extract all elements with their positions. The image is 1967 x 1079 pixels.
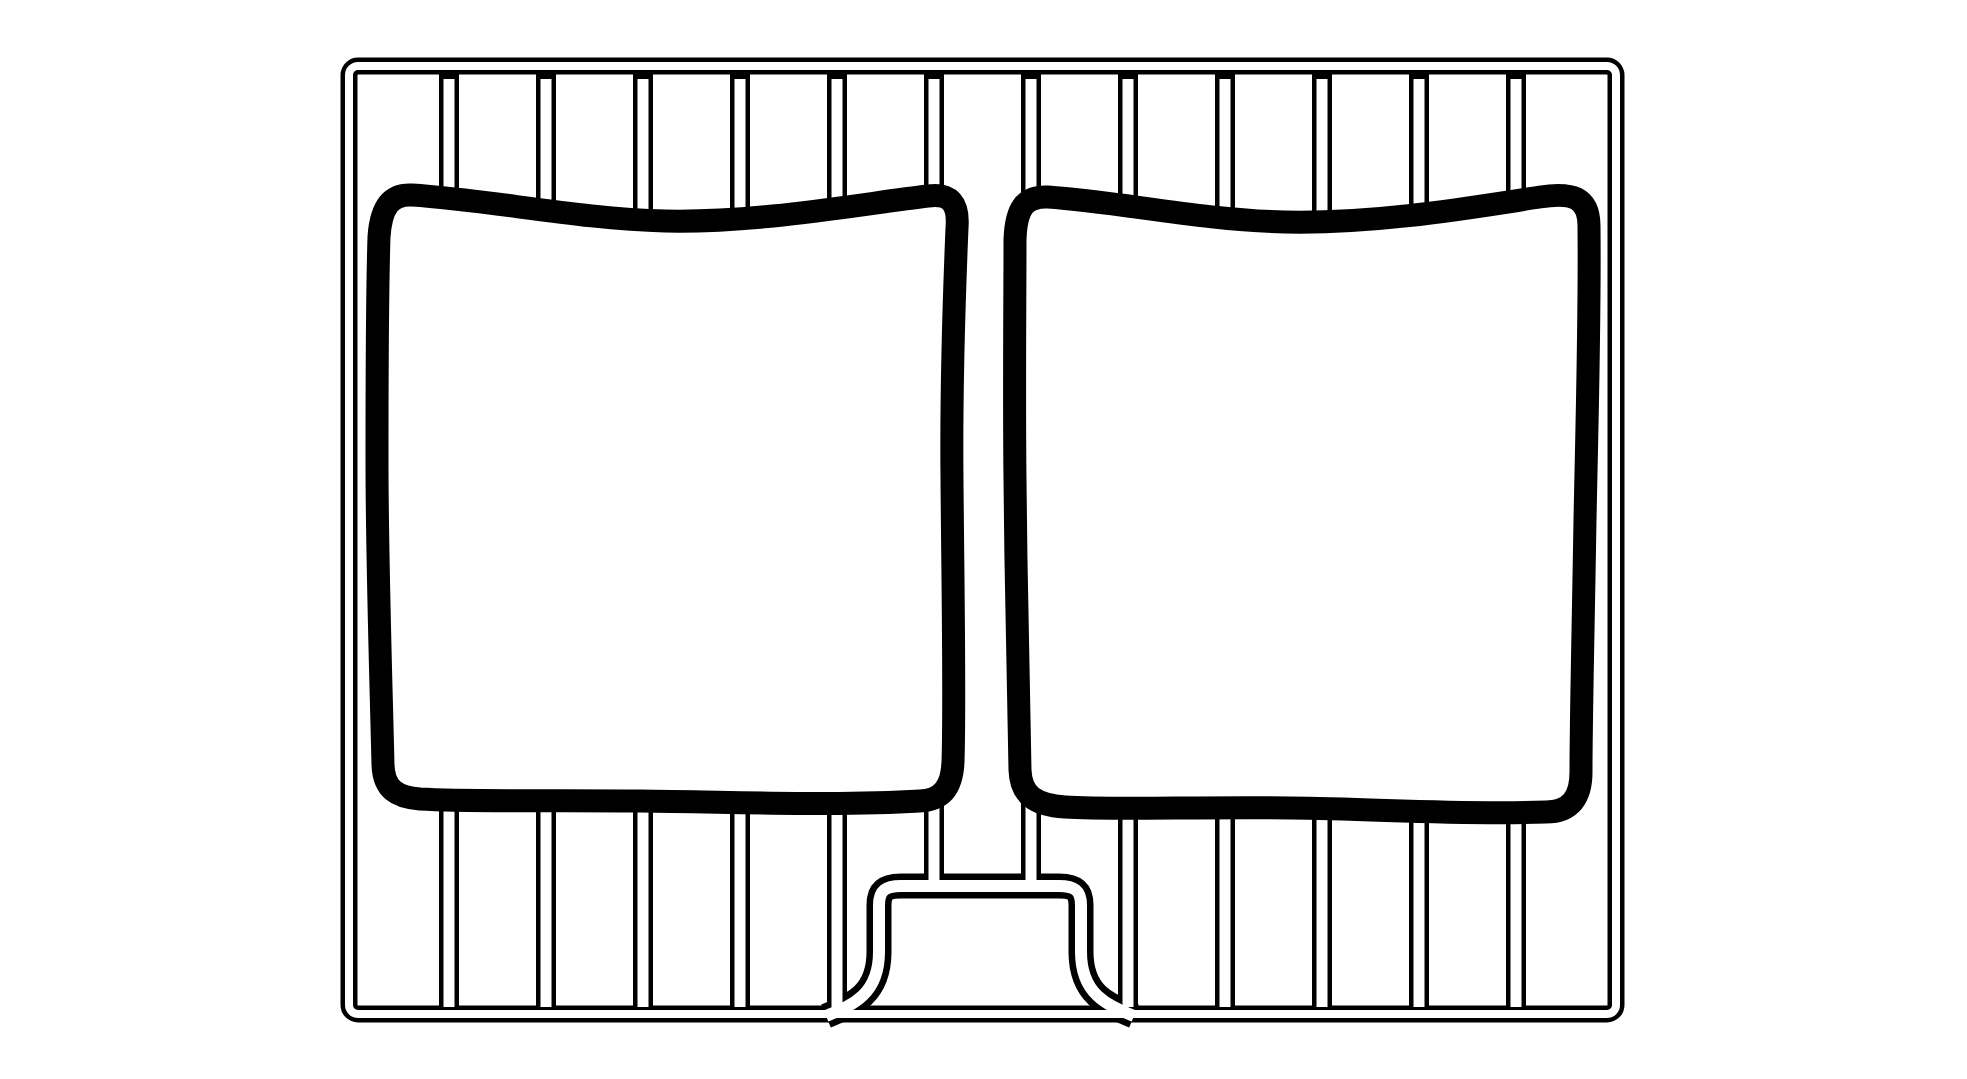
bread-slices xyxy=(377,195,1589,813)
canvas xyxy=(0,0,1967,1079)
rack-handle-outline xyxy=(826,886,1134,1016)
grill-rack-illustration xyxy=(0,0,1967,1079)
rack-handle-tube xyxy=(826,886,1134,1016)
bread-slice-left xyxy=(377,195,957,804)
grill-rack-drawing xyxy=(0,0,1967,1079)
bread-slice-right xyxy=(1015,195,1590,813)
